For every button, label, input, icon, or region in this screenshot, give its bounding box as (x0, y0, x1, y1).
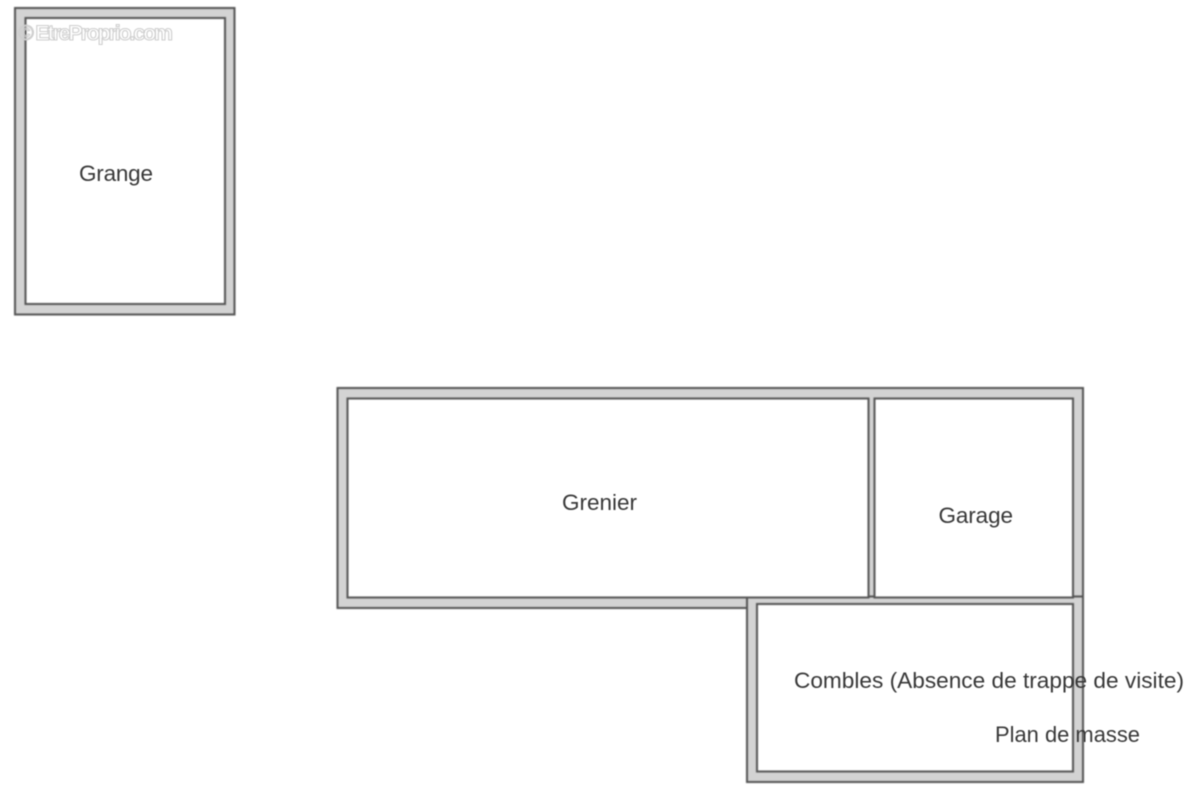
svg-text:Garage: Garage (939, 503, 1014, 528)
svg-text:Grenier: Grenier (562, 490, 638, 515)
svg-text:Combles (Absence de trappe de: Combles (Absence de trappe de visite) (794, 668, 1184, 693)
svg-text:Plan de masse: Plan de masse (995, 722, 1140, 747)
svg-text:© EtreProprio.com: © EtreProprio.com (18, 21, 173, 45)
svg-text:Grange: Grange (79, 161, 153, 186)
